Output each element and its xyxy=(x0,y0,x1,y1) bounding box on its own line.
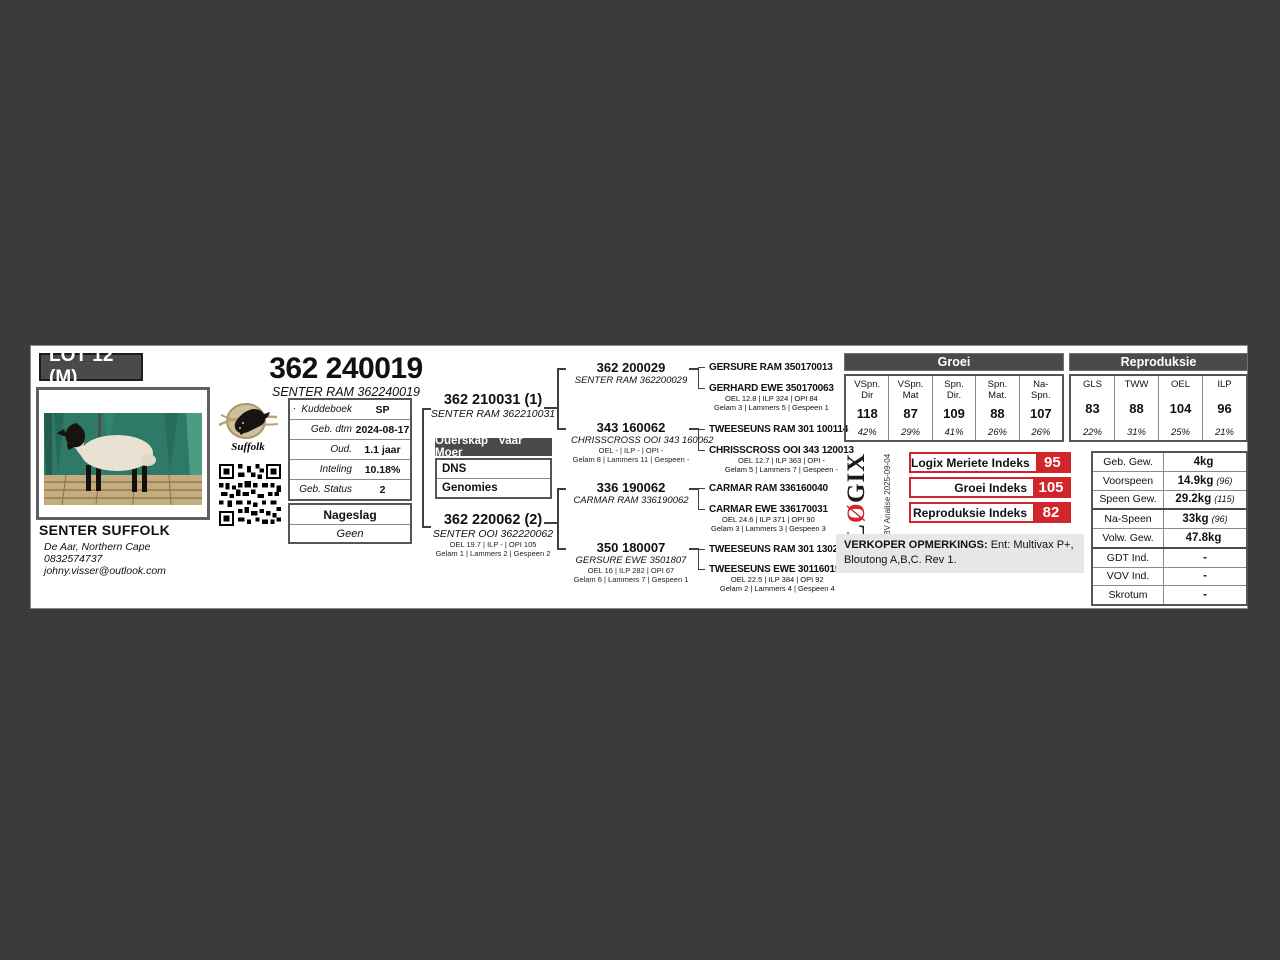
sire-name: SENTER RAM 362210031 xyxy=(423,408,563,420)
groei-table: VSpn. Dir 118 42% VSpn. Mat 87 29% Spn. … xyxy=(844,374,1064,442)
animal-photo xyxy=(44,413,202,505)
lot-label: LOT 12 (M) xyxy=(49,345,141,389)
weight-row-vov-ind: VOV Ind. - xyxy=(1093,568,1246,587)
groei-header: Groei xyxy=(844,353,1064,371)
pedigree-connector xyxy=(422,408,431,528)
ebv-cell-vspn-dir: VSpn. Dir 118 42% xyxy=(846,376,889,440)
pedigree-ggp-1: GERSURE RAM 350170013 xyxy=(709,362,833,373)
breeder-phone: 0832574737 xyxy=(44,553,166,565)
logix-meriete-indeks: Logix Meriete Indeks 95 xyxy=(909,452,1071,473)
pedigree-grandparent-1: 362 200029 SENTER RAM 362200029 xyxy=(571,360,691,386)
groei-indeks: Groei Indeks 105 xyxy=(909,477,1071,498)
dam-name: SENTER OOI 362220062 xyxy=(423,528,563,540)
pedigree-grandparent-3: 336 190062 CARMAR RAM 336190062 xyxy=(571,480,691,506)
ebv-cell-na-spn: Na- Spn. 107 26% xyxy=(1020,376,1062,440)
page-background: { "lot": { "label": "LOT 12 (M)" }, "ani… xyxy=(0,0,1280,960)
info-row-oud: Oud. 1.1 jaar xyxy=(290,440,410,460)
logix-o-icon: Ø xyxy=(843,503,871,523)
logix-brand-icon: LØGIX xyxy=(843,449,871,541)
pedigree-connector xyxy=(544,522,557,524)
weight-row-speen-gew: Speen Gew. 29.2kg(115) xyxy=(1093,491,1246,511)
ebv-cell-ilp: ILP 96 21% xyxy=(1203,376,1246,440)
weights-table: Geb. Gew. 4kg Voorspeen 14.9kg(96) Speen… xyxy=(1091,451,1248,606)
reproduksie-table: GLS 83 22% TWW 88 31% OEL 104 25% ILP 96… xyxy=(1069,374,1248,442)
ouerskap-row-dns: DNS xyxy=(437,460,550,479)
dam-stats: OEL 19.7 | ILP - | OPI 105 xyxy=(423,540,563,549)
pedigree-ggp-2: GERHARD EWE 350170063 OEL 12.8 | ILP 324… xyxy=(709,383,834,412)
pedigree-ggp-3: TWEESEUNS RAM 301 100114 xyxy=(709,424,848,435)
breeder-name: SENTER SUFFOLK xyxy=(39,522,170,538)
pedigree-connector xyxy=(698,367,705,389)
pedigree-ggp-5: CARMAR RAM 336160040 xyxy=(709,483,828,494)
logix-logo: LØGIX EBV Analise 2025-09-04 xyxy=(843,449,907,541)
info-row-kuddeboek: . Kuddeboek SP xyxy=(290,400,410,420)
weight-row-skrotum: Skrotum - xyxy=(1093,586,1246,604)
breeder-email: johny.visser@outlook.com xyxy=(44,565,166,577)
nageslag-value: Geen xyxy=(290,525,410,542)
pedigree-dam: 362 220062 (2) SENTER OOI 362220062 OEL … xyxy=(423,512,563,558)
dam-id: 362 220062 (2) xyxy=(423,512,563,528)
pedigree-ggp-4: CHRISSCROSS OOI 343 120013 OEL 12.7 | IL… xyxy=(709,445,854,474)
pedigree-connector xyxy=(698,488,705,510)
ouerskap-header: Ouerskap Vaar Moer xyxy=(435,438,552,456)
animal-photo-frame xyxy=(36,387,210,520)
pedigree-ggp-7: TWEESEUNS RAM 301 130206 xyxy=(709,544,849,555)
animal-info-table: . Kuddeboek SP Geb. dtm 2024-08-17 Oud. … xyxy=(288,398,412,501)
suffolk-emblem-icon: Suffolk xyxy=(217,401,279,453)
ouerskap-row-genomies: Genomies xyxy=(437,479,550,497)
weight-row-geb-gew: Geb. Gew. 4kg xyxy=(1093,453,1246,472)
seller-remarks: VERKOPER OPMERKINGS: Ent: Multivax P+, B… xyxy=(836,534,1084,573)
weight-row-voorspeen: Voorspeen 14.9kg(96) xyxy=(1093,472,1246,491)
sire-id: 362 210031 (1) xyxy=(423,392,563,408)
ebv-analysis-date: EBV Analise 2025-09-04 xyxy=(883,449,892,541)
suffolk-script: Suffolk xyxy=(231,441,265,453)
info-bullet: . xyxy=(293,401,296,412)
pedigree-ggp-8: TWEESEUNS EWE 301160152 OEL 22.5 | ILP 3… xyxy=(709,564,846,593)
catalog-sheet: LOT 12 (M) xyxy=(30,345,1248,609)
weight-row-na-speen: Na-Speen 33kg(96) xyxy=(1093,510,1246,529)
pedigree-connector xyxy=(544,407,557,409)
ebv-cell-spn-mat: Spn. Mat. 88 26% xyxy=(976,376,1019,440)
index-value-badge: 105 xyxy=(1033,479,1069,496)
qr-code xyxy=(219,464,281,526)
pedigree-connector xyxy=(698,549,705,570)
lot-header: LOT 12 (M) xyxy=(39,353,143,381)
pedigree-sire: 362 210031 (1) SENTER RAM 362210031 xyxy=(423,392,563,420)
pedigree-connector xyxy=(557,488,566,550)
pedigree-connector xyxy=(557,368,566,430)
breeder-contact: De Aar, Northern Cape 0832574737 johny.v… xyxy=(44,541,166,577)
ouerskap-box: DNS Genomies xyxy=(435,458,552,499)
index-value-badge: 95 xyxy=(1036,454,1069,471)
breed-logo: Suffolk xyxy=(217,401,279,453)
pedigree-connector xyxy=(698,429,705,451)
info-row-geb-status: Geb. Status 2 xyxy=(290,480,410,499)
dam-stats: Gelam 1 | Lammers 2 | Gespeen 2 xyxy=(423,549,563,558)
ebv-cell-tww: TWW 88 31% xyxy=(1115,376,1159,440)
info-row-geb-dtm: Geb. dtm 2024-08-17 xyxy=(290,420,410,440)
pedigree-grandparent-4: 350 180007 GERSURE EWE 3501807 OEL 16 | … xyxy=(571,540,691,584)
index-value-badge: 82 xyxy=(1033,504,1069,521)
weight-row-volw-gew: Volw. Gew. 47.8kg xyxy=(1093,529,1246,549)
nageslag-box: Nageslag Geen xyxy=(288,503,412,544)
reproduksie-header: Reproduksie xyxy=(1069,353,1248,371)
reproduksie-indeks: Reproduksie Indeks 82 xyxy=(909,502,1071,523)
animal-id: 362 240019 xyxy=(231,354,461,384)
nageslag-header: Nageslag xyxy=(290,505,410,525)
ebv-cell-spn-dir: Spn. Dir. 109 41% xyxy=(933,376,976,440)
ebv-cell-oel: OEL 104 25% xyxy=(1159,376,1203,440)
pedigree-ggp-6: CARMAR EWE 336170031 OEL 24.6 | ILP 371 … xyxy=(709,504,828,533)
ebv-cell-gls: GLS 83 22% xyxy=(1071,376,1115,440)
breeder-location: De Aar, Northern Cape xyxy=(44,541,166,553)
seller-remarks-label: VERKOPER OPMERKINGS: xyxy=(844,539,988,551)
weight-row-gdt-ind: GDT Ind. - xyxy=(1093,549,1246,568)
pedigree-grandparent-2: 343 160062 CHRISSCROSS OOI 343 160062 OE… xyxy=(571,420,691,464)
ebv-cell-vspn-mat: VSpn. Mat 87 29% xyxy=(889,376,932,440)
info-row-inteling: Inteling 10.18% xyxy=(290,460,410,480)
